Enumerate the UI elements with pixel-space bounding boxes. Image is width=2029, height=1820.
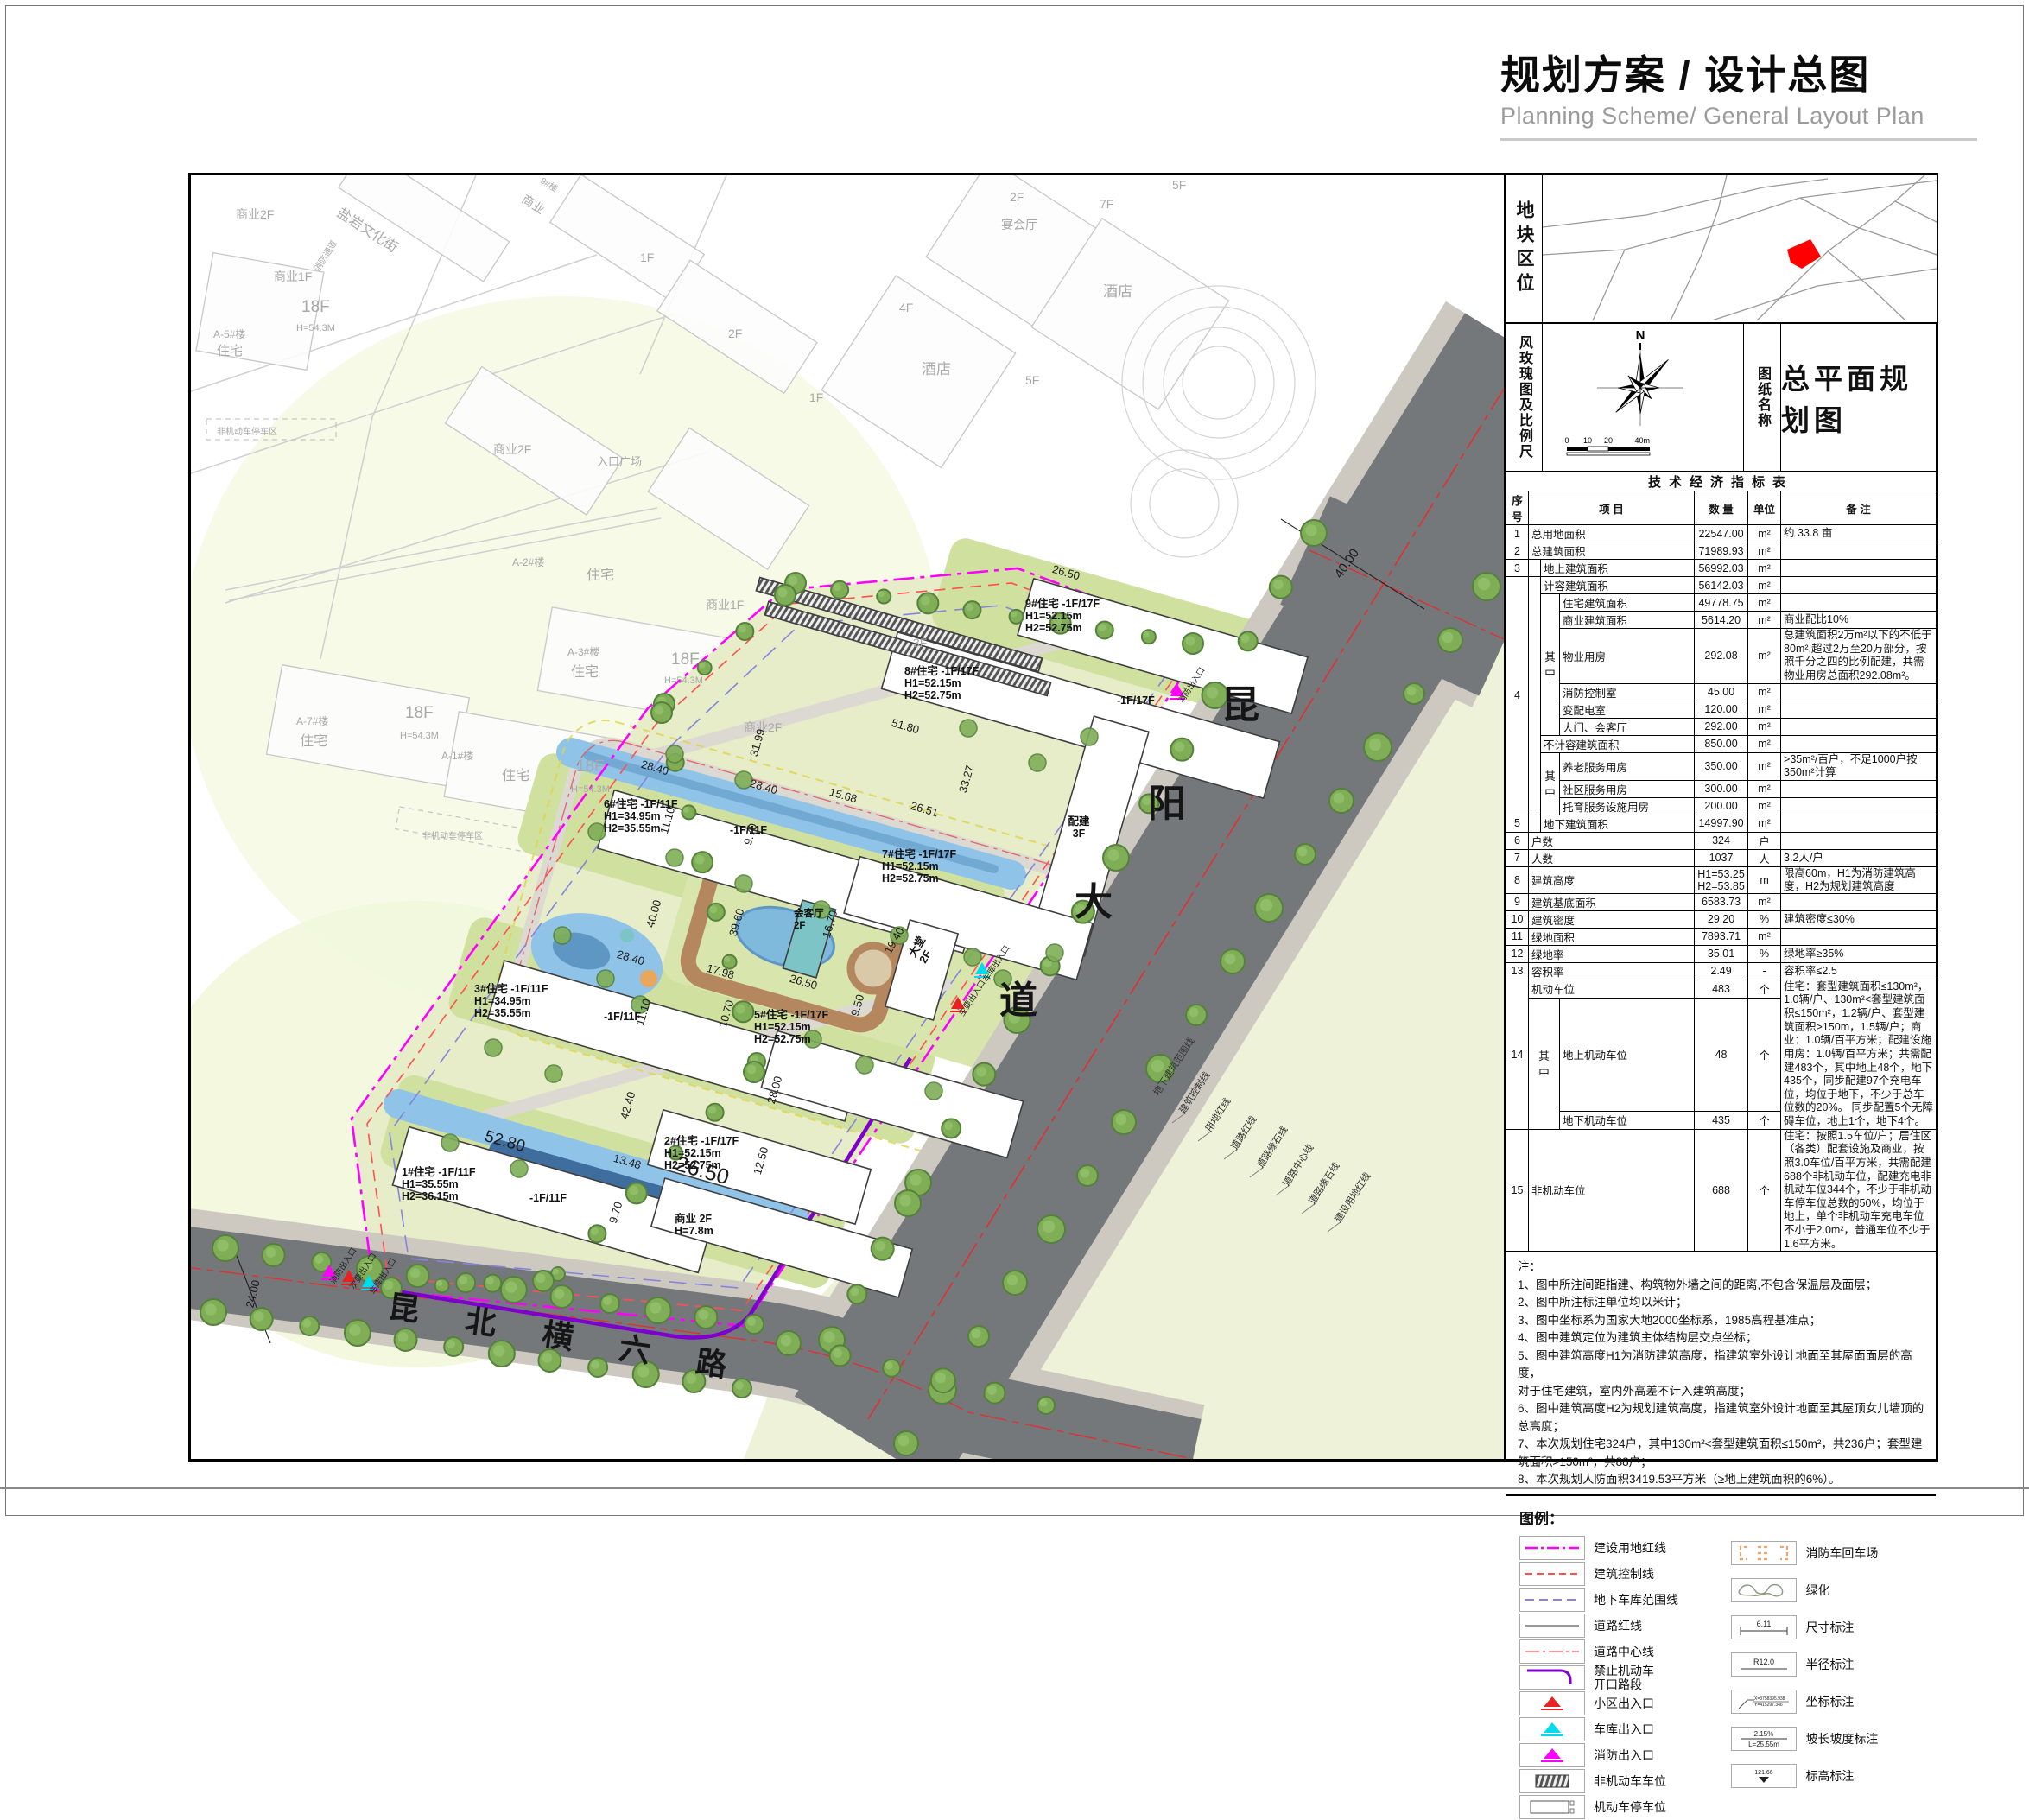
legend-item: 绿化 [1731, 1572, 1927, 1609]
table-row: 商业建筑面积5614.20m²商业配比10% [1506, 612, 1937, 629]
legend-symbol-line-magenta-icon [1519, 1536, 1585, 1560]
page-subtitle: Planning Scheme/ General Layout Plan [1500, 103, 1980, 130]
context-label: A-7#楼 [296, 714, 328, 727]
svg-text:40m: 40m [1634, 436, 1650, 445]
table-cell: 2.49 [1695, 962, 1748, 980]
table-cell: 机动车位 [1529, 980, 1695, 998]
context-label: 商业2F [236, 207, 274, 221]
table-cell: 容积率≤2.5 [1781, 962, 1937, 980]
table-cell: 容积率 [1529, 962, 1695, 980]
table-cell: m² [1748, 893, 1781, 910]
note-item: 2、图中所注标注单位均以米计； [1518, 1294, 1925, 1312]
table-cell: 总建筑面积2万m²以下的不低于80m²,超过2万至20万部分，按照千分之四的比例… [1781, 629, 1937, 684]
context-label: A-3#楼 [567, 645, 599, 658]
context-label: 入口广场 [597, 455, 642, 468]
table-cell: 3 [1506, 560, 1529, 577]
legend-label: 禁止机动车 开口路段 [1594, 1664, 1654, 1691]
table-cell [1781, 718, 1937, 735]
note-item: 4、图中建筑定位为建筑主体结构层交点坐标； [1518, 1329, 1925, 1348]
context-label: 4F [899, 301, 913, 314]
note-item: 1、图中所注间距指建、构筑物外墙之间的距离,不包含保温层及面层； [1518, 1277, 1925, 1295]
svg-text:0: 0 [1564, 436, 1569, 445]
legend-item: 121.66标高标注 [1731, 1758, 1927, 1795]
road-name-char: 昆 [386, 1289, 422, 1329]
table-row: 5地下建筑面积14997.90m² [1506, 815, 1937, 832]
table-cell: 其 中 [1529, 998, 1560, 1129]
table-row: 6户数324户 [1506, 832, 1937, 849]
table-cell [1781, 780, 1937, 797]
context-label: 住宅 [587, 568, 614, 583]
table-cell: 435 [1695, 1111, 1748, 1129]
table-row: 1总用地面积22547.00m²约 33.8 亩 [1506, 525, 1937, 542]
context-label: 住宅 [217, 344, 243, 358]
table-cell: 建筑高度 [1529, 866, 1695, 893]
legend-label: 坡长坡度标注 [1805, 1732, 1878, 1746]
table-cell [1781, 683, 1937, 701]
legend-label: 消防出入口 [1594, 1748, 1654, 1762]
table-cell: 292.08 [1695, 629, 1748, 684]
table-cell: 建筑基底面积 [1529, 893, 1695, 910]
svg-text:20: 20 [1604, 436, 1613, 445]
table-cell: 建筑密度 [1529, 910, 1695, 928]
table-cell: >35m²/百户，不足1000户按350m²计算 [1781, 752, 1937, 780]
table-cell: 其 中 [1541, 594, 1560, 736]
building-label: -1F/17F [1117, 694, 1155, 707]
table-cell: m² [1748, 577, 1781, 594]
table-cell: 地上建筑面积 [1541, 560, 1695, 577]
legend-label: 绿化 [1805, 1583, 1829, 1597]
table-cell: 120.00 [1695, 701, 1748, 718]
legend-label: 尺寸标注 [1805, 1620, 1854, 1634]
legend-label: 非机动车车位 [1594, 1774, 1666, 1788]
legend-item: 道路中心线 [1519, 1639, 1731, 1665]
location-parcel [1787, 239, 1821, 269]
table-row: 消防控制室45.00m² [1506, 683, 1937, 701]
table-cell: 约 33.8 亩 [1781, 525, 1937, 542]
legend-symbol-coord-icon: X=3758395.938Y=415297.346 [1731, 1690, 1797, 1714]
note-item: 7、本次规划住宅324户，其中130m²<套型建筑面积≤150m²，共236户；… [1518, 1436, 1925, 1471]
table-cell: 688 [1695, 1129, 1748, 1252]
legend-label: 机动车停车位 [1594, 1800, 1666, 1814]
table-cell: 不计容建筑面积 [1541, 735, 1695, 752]
context-label: 消防通道 [312, 238, 339, 274]
legend-item: 机动车停车位 [1519, 1794, 1731, 1820]
table-cell: 数 量 [1695, 491, 1748, 525]
table-cell: 总建筑面积 [1529, 542, 1695, 560]
legend-item: 建筑控制线 [1519, 1561, 1731, 1587]
context-label: 住宅 [502, 768, 529, 783]
road-name-char: 昆 [1221, 684, 1259, 726]
section-label-location: 地块区位 [1506, 175, 1543, 322]
table-cell: 人 [1748, 849, 1781, 866]
context-label: H=54.3M [571, 784, 610, 795]
table-cell: 物业用房 [1560, 629, 1695, 684]
table-cell: 序号 [1506, 491, 1529, 525]
context-label: 5F [1172, 178, 1186, 192]
table-cell: 3.2人/户 [1781, 849, 1937, 866]
context-label: 1F [809, 390, 823, 404]
table-cell: m² [1748, 780, 1781, 797]
table-cell: 56992.03 [1695, 560, 1748, 577]
windrose-box: N 0102040m [1543, 324, 1744, 471]
legend-symbol-line-red-center-icon [1519, 1639, 1585, 1664]
section-location: 地块区位 [1506, 175, 1936, 324]
context-label: 18F [405, 704, 434, 722]
table-cell [1529, 560, 1541, 577]
table-cell: 56142.03 [1695, 577, 1748, 594]
table-cell: 324 [1695, 832, 1748, 849]
table-cell: 商业建筑面积 [1560, 612, 1695, 629]
table-cell: m² [1748, 612, 1781, 629]
context-label: 宴会厅 [1001, 218, 1037, 231]
svg-text:L=25.55m: L=25.55m [1749, 1741, 1780, 1748]
legend-item: 禁止机动车 开口路段 [1519, 1665, 1731, 1690]
table-cell [1781, 815, 1937, 832]
table-row: 社区服务用房300.00m² [1506, 780, 1937, 797]
table-row: 其 中住宅建筑面积49778.75m² [1506, 594, 1937, 612]
table-row: 不计容建筑面积850.00m² [1506, 735, 1937, 752]
context-label: 住宅 [571, 664, 599, 680]
table-cell: 绿地面积 [1529, 928, 1695, 945]
table-cell: 14997.90 [1695, 815, 1748, 832]
compass-n-label: N [1636, 328, 1645, 343]
table-row: 15非机动车位688个住宅：按照1.5车位/户；居住区（各类）配套设施及商业，按… [1506, 1129, 1937, 1252]
table-cell: 7893.71 [1695, 928, 1748, 945]
table-cell: 变配电室 [1560, 701, 1695, 718]
table-cell [1781, 701, 1937, 718]
table-row: 托育服务设施用房200.00m² [1506, 797, 1937, 815]
table-row: 物业用房292.08m²总建筑面积2万m²以下的不低于80m²,超过2万至20万… [1506, 629, 1937, 684]
legend-label: 地下车库范围线 [1594, 1593, 1678, 1607]
location-map [1543, 175, 1937, 322]
table-cell: 8 [1506, 866, 1529, 893]
legend-symbol-green-icon [1731, 1578, 1797, 1602]
table-cell: 11 [1506, 928, 1529, 945]
legend-label: 道路中心线 [1594, 1645, 1654, 1658]
context-label: 9#楼 [538, 175, 560, 194]
legend-item: 建设用地红线 [1519, 1535, 1731, 1561]
table-cell [1781, 928, 1937, 945]
context-label: 2F [1010, 190, 1024, 204]
table-cell: 户数 [1529, 832, 1695, 849]
table-cell: 48 [1695, 998, 1748, 1111]
table-cell: 消防控制室 [1560, 683, 1695, 701]
legend-label: 建设用地红线 [1594, 1541, 1666, 1555]
context-label: 7F [1100, 197, 1113, 211]
table-cell: m² [1748, 701, 1781, 718]
table-row: 7人数1037人3.2人/户 [1506, 849, 1937, 866]
table-cell [1529, 577, 1541, 815]
site-plan: 商业2F商业1FA-5#楼住宅18FH=54.3M盐岩文化街商业9#楼消防通道1… [191, 175, 1504, 1459]
title-block: 规划方案 / 设计总图 Planning Scheme/ General Lay… [1500, 54, 1980, 141]
legend-symbol-corner-purple-icon [1519, 1665, 1585, 1690]
table-cell: 大门、会客厅 [1560, 718, 1695, 735]
legend-header: 图例： [1519, 1506, 1927, 1528]
table-cell: 单位 [1748, 491, 1781, 525]
svg-text:Y=415297.346: Y=415297.346 [1754, 1703, 1783, 1708]
table-cell: 地下机动车位 [1560, 1111, 1695, 1129]
legend-symbol-slope-icon: 2.15%L=25.55m [1731, 1727, 1797, 1751]
table-cell: 个 [1748, 1111, 1781, 1129]
legend-item: X=3758395.938Y=415297.346坐标标注 [1731, 1684, 1927, 1721]
table-row: 9建筑基底面积6583.73m² [1506, 893, 1937, 910]
context-label: H=54.3M [400, 731, 439, 741]
section-label-windrose: 风玫瑰图及比例尺 [1506, 324, 1543, 471]
table-row: 11绿地面积7893.71m² [1506, 928, 1937, 945]
context-label: A-5#楼 [213, 327, 245, 340]
building-label: -1F/11F [529, 1192, 567, 1204]
context-label: 非机动车停车区 [422, 830, 483, 841]
table-cell: m² [1748, 560, 1781, 577]
context-label: H=54.3M [664, 675, 703, 686]
table-cell: 住宅：按照1.5车位/户；居住区（各类）配套设施及商业，按照3.0车位/百平方米… [1781, 1129, 1937, 1252]
road-name-char: 大 [1075, 881, 1113, 923]
table-cell: 商业配比10% [1781, 612, 1937, 629]
table-cell: m² [1748, 752, 1781, 780]
legend-symbol-line-blue-dash-icon [1519, 1588, 1585, 1612]
table-cell: 300.00 [1695, 780, 1748, 797]
table-cell: 托育服务设施用房 [1560, 797, 1695, 815]
table-cell: 12 [1506, 945, 1529, 962]
road-name-char: 阳 [1148, 783, 1186, 825]
table-row: 12绿地率35.01%绿地率≥35% [1506, 945, 1937, 962]
table-cell: 住宅：套型建筑面积≤130m²，1.0辆/户、130m²<套型建筑面积≤150m… [1781, 980, 1937, 1129]
table-cell: 养老服务用房 [1560, 752, 1695, 780]
svg-text:6.11: 6.11 [1757, 1620, 1772, 1628]
table-cell: m² [1748, 525, 1781, 542]
table-cell: m² [1748, 629, 1781, 684]
legend-symbol-dim-icon: 6.11 [1731, 1615, 1797, 1639]
road-name-char: 北 [463, 1303, 498, 1342]
title-rule [1500, 138, 1977, 141]
table-cell: m² [1748, 542, 1781, 560]
table-cell: 71989.93 [1695, 542, 1748, 560]
section-windrose: 风玫瑰图及比例尺 N 0102040m 图纸名称 总平面规划图 [1506, 324, 1936, 472]
table-cell: 10 [1506, 910, 1529, 928]
table-cell: - [1748, 962, 1781, 980]
context-label: 2F [728, 327, 742, 340]
table-cell: 15 [1506, 1129, 1529, 1252]
table-cell: 29.20 [1695, 910, 1748, 928]
table-cell: 户 [1748, 832, 1781, 849]
table-row: 其 中养老服务用房350.00m²>35m²/百户，不足1000户按350m²计… [1506, 752, 1937, 780]
legend-item: 地下车库范围线 [1519, 1587, 1731, 1613]
legend-symbol-radius-icon: R12.0 [1731, 1652, 1797, 1677]
context-label: 商业1F [706, 598, 744, 612]
note-item: 6、图中建筑高度H2为规划建筑高度，指建筑室外设计地面至其屋顶女儿墙顶的总高度； [1518, 1400, 1925, 1436]
svg-text:121.66: 121.66 [1755, 1770, 1774, 1776]
table-cell: 483 [1695, 980, 1748, 998]
table-cell: 个 [1748, 1129, 1781, 1252]
table-cell: % [1748, 945, 1781, 962]
context-label: 酒店 [922, 361, 951, 377]
context-label: 商业1F [274, 270, 312, 283]
legend-item: 消防出入口 [1519, 1742, 1731, 1768]
table-cell: 绿地率≥35% [1781, 945, 1937, 962]
table-cell: m² [1748, 815, 1781, 832]
table-cell [1781, 893, 1937, 910]
legend-label: 标高标注 [1805, 1769, 1854, 1783]
table-cell: 49778.75 [1695, 594, 1748, 612]
legend-section: 图例： 建设用地红线建筑控制线地下车库范围线道路红线道路中心线禁止机动车 开口路… [1506, 1496, 1936, 1820]
table-row: 10建筑密度29.20%建筑密度≤30% [1506, 910, 1937, 928]
table-cell: 850.00 [1695, 735, 1748, 752]
context-label: 18F [301, 298, 330, 316]
table-cell [1781, 797, 1937, 815]
table-cell: 6583.73 [1695, 893, 1748, 910]
legend-item: R12.0半径标注 [1731, 1646, 1927, 1684]
table-cell: 5 [1506, 815, 1529, 832]
legend-symbol-stall-icon [1519, 1795, 1585, 1819]
table-row: 8建筑高度H1=53.25 H2=53.85m限高60m，H1为消防建筑高度，H… [1506, 866, 1937, 893]
building-label: 商业 2FH=7.8m [675, 1212, 713, 1237]
context-label: 非机动车停车区 [217, 426, 277, 437]
road-name-char: 横 [540, 1316, 575, 1356]
table-cell [1781, 577, 1937, 594]
table-cell: 13 [1506, 962, 1529, 980]
table-cell: 4 [1506, 577, 1529, 815]
table-cell: m² [1748, 718, 1781, 735]
note-item: 5、图中建筑高度H1为消防建筑高度，指建筑室外设计地面至其屋面面层的高度， 对于… [1518, 1348, 1925, 1401]
location-map-svg [1543, 175, 1937, 320]
svg-text:10: 10 [1583, 436, 1592, 445]
table-cell [1529, 815, 1541, 832]
context-label: 5F [1025, 373, 1039, 387]
table-cell: 个 [1748, 998, 1781, 1111]
table-cell: 5614.20 [1695, 612, 1748, 629]
legend-symbol-tri-cyan-icon [1519, 1717, 1585, 1741]
table-cell: 7 [1506, 849, 1529, 866]
section-label-drawing-name: 图纸名称 [1744, 324, 1781, 471]
legend-symbol-line-red-dash-icon [1519, 1562, 1585, 1586]
table-cell: H1=53.25 H2=53.85 [1695, 866, 1748, 893]
legend-symbol-tri-red-icon [1519, 1691, 1585, 1715]
context-label: 18F [671, 650, 700, 669]
table-cell: 地下建筑面积 [1541, 815, 1695, 832]
note-item: 8、本次规划人防面积3419.53平方米（≥地上建筑面积的6%）。 [1518, 1471, 1925, 1489]
legend-label: 消防车回车场 [1805, 1546, 1878, 1560]
legend-label: 车库出入口 [1594, 1722, 1654, 1736]
tec-indicator-table: 序号项 目数 量单位备 注1总用地面积22547.00m²约 33.8 亩2总建… [1506, 491, 1937, 1252]
drawing-name: 总平面规划图 [1781, 324, 1936, 471]
table-cell [1781, 594, 1937, 612]
windrose-svg: N 0102040m [1543, 324, 1741, 467]
context-label: H=54.3M [296, 323, 335, 333]
table-cell [1781, 560, 1937, 577]
table-cell [1781, 735, 1937, 752]
legend-label: 坐标标注 [1805, 1695, 1854, 1709]
table-cell: m² [1748, 735, 1781, 752]
legend-symbol-line-gray-icon [1519, 1614, 1585, 1638]
table-title: 技术经济指标表 [1506, 472, 1936, 491]
table-cell: 地上机动车位 [1560, 998, 1695, 1111]
table-row: 13容积率2.49-容积率≤2.5 [1506, 962, 1937, 980]
table-cell: 22547.00 [1695, 525, 1748, 542]
table-cell: 45.00 [1695, 683, 1748, 701]
info-panel: 地块区位 [1504, 175, 1936, 1459]
context-label: 18F [576, 758, 605, 776]
table-cell: 非机动车位 [1529, 1129, 1695, 1252]
table-cell: % [1748, 910, 1781, 928]
table-cell [1781, 832, 1937, 849]
table-cell: m² [1748, 683, 1781, 701]
table-row: 4计容建筑面积56142.03m² [1506, 577, 1937, 594]
table-cell: 292.00 [1695, 718, 1748, 735]
table-cell: 住宅建筑面积 [1560, 594, 1695, 612]
svg-text:2.15%: 2.15% [1754, 1730, 1774, 1738]
table-cell: 6 [1506, 832, 1529, 849]
table-cell: 计容建筑面积 [1541, 577, 1695, 594]
road-name-char: 路 [694, 1344, 730, 1384]
table-cell: 2 [1506, 542, 1529, 560]
table-cell: 限高60m，H1为消防建筑高度，H2为规划建筑高度 [1781, 866, 1937, 893]
table-cell: 14 [1506, 980, 1529, 1129]
legend-item: 2.15%L=25.55m坡长坡度标注 [1731, 1721, 1927, 1758]
table-cell: 其 中 [1541, 752, 1560, 815]
legend-item: 6.11尺寸标注 [1731, 1609, 1927, 1646]
table-cell: 总用地面积 [1529, 525, 1695, 542]
table-cell: 1 [1506, 525, 1529, 542]
context-label: 住宅 [300, 733, 327, 749]
road-name-char: 六 [617, 1330, 652, 1370]
table-cell: m² [1748, 928, 1781, 945]
legend-item: 消防车回车场 [1731, 1535, 1927, 1572]
road-name-char: 道 [999, 980, 1037, 1022]
table-cell [1781, 542, 1937, 560]
table-cell: m² [1748, 797, 1781, 815]
legend-label: 道路红线 [1594, 1619, 1642, 1633]
table-cell: 9 [1506, 893, 1529, 910]
legend-item: 非机动车车位 [1519, 1768, 1731, 1794]
legend-symbol-tri-magenta-icon [1519, 1743, 1585, 1767]
table-cell: 人数 [1529, 849, 1695, 866]
table-cell: 项 目 [1529, 491, 1695, 525]
context-label: A-2#楼 [512, 555, 544, 568]
table-row: 2总建筑面积71989.93m² [1506, 542, 1937, 560]
context-label: 商业2F [493, 442, 531, 456]
context-label: 酒店 [1103, 283, 1132, 300]
table-row: 变配电室120.00m² [1506, 701, 1937, 718]
legend-item: 车库出入口 [1519, 1716, 1731, 1742]
table-row: 14机动车位483个住宅：套型建筑面积≤130m²，1.0辆/户、130m²<套… [1506, 980, 1937, 998]
context-label: A-1#楼 [441, 749, 473, 762]
legend-symbol-turnaround-icon [1731, 1541, 1797, 1565]
legend-label: 半径标注 [1805, 1658, 1854, 1671]
context-label: 1F [640, 250, 654, 264]
notes-section: 注： 1、图中所注间距指建、构筑物外墙之间的距离,不包含保温层及面层；2、图中所… [1506, 1252, 1936, 1496]
svg-text:X=3758395.938: X=3758395.938 [1754, 1696, 1785, 1702]
table-cell: m [1748, 866, 1781, 893]
table-cell: 社区服务用房 [1560, 780, 1695, 797]
table-cell: 绿地率 [1529, 945, 1695, 962]
table-cell: 1037 [1695, 849, 1748, 866]
legend-label: 建筑控制线 [1594, 1567, 1654, 1581]
page: { "title": {"zh": "规划方案 / 设计总图", "en": "… [0, 0, 2029, 1521]
page-title: 规划方案 / 设计总图 [1500, 54, 1980, 98]
table-cell: 备 注 [1781, 491, 1937, 525]
context-label: 商业 [519, 192, 547, 217]
table-row: 序号项 目数 量单位备 注 [1506, 491, 1937, 525]
table-row: 大门、会客厅292.00m² [1506, 718, 1937, 735]
note-item: 3、图中坐标系为国家大地2000坐标系，1985高程基准点； [1518, 1312, 1925, 1330]
table-cell: 35.01 [1695, 945, 1748, 962]
table-cell: 个 [1748, 980, 1781, 998]
table-cell: 建筑密度≤30% [1781, 910, 1937, 928]
table-row: 3地上建筑面积56992.03m² [1506, 560, 1937, 577]
table-cell: 350.00 [1695, 752, 1748, 780]
legend-symbol-hatch-icon [1519, 1769, 1585, 1793]
table-cell: m² [1748, 594, 1781, 612]
